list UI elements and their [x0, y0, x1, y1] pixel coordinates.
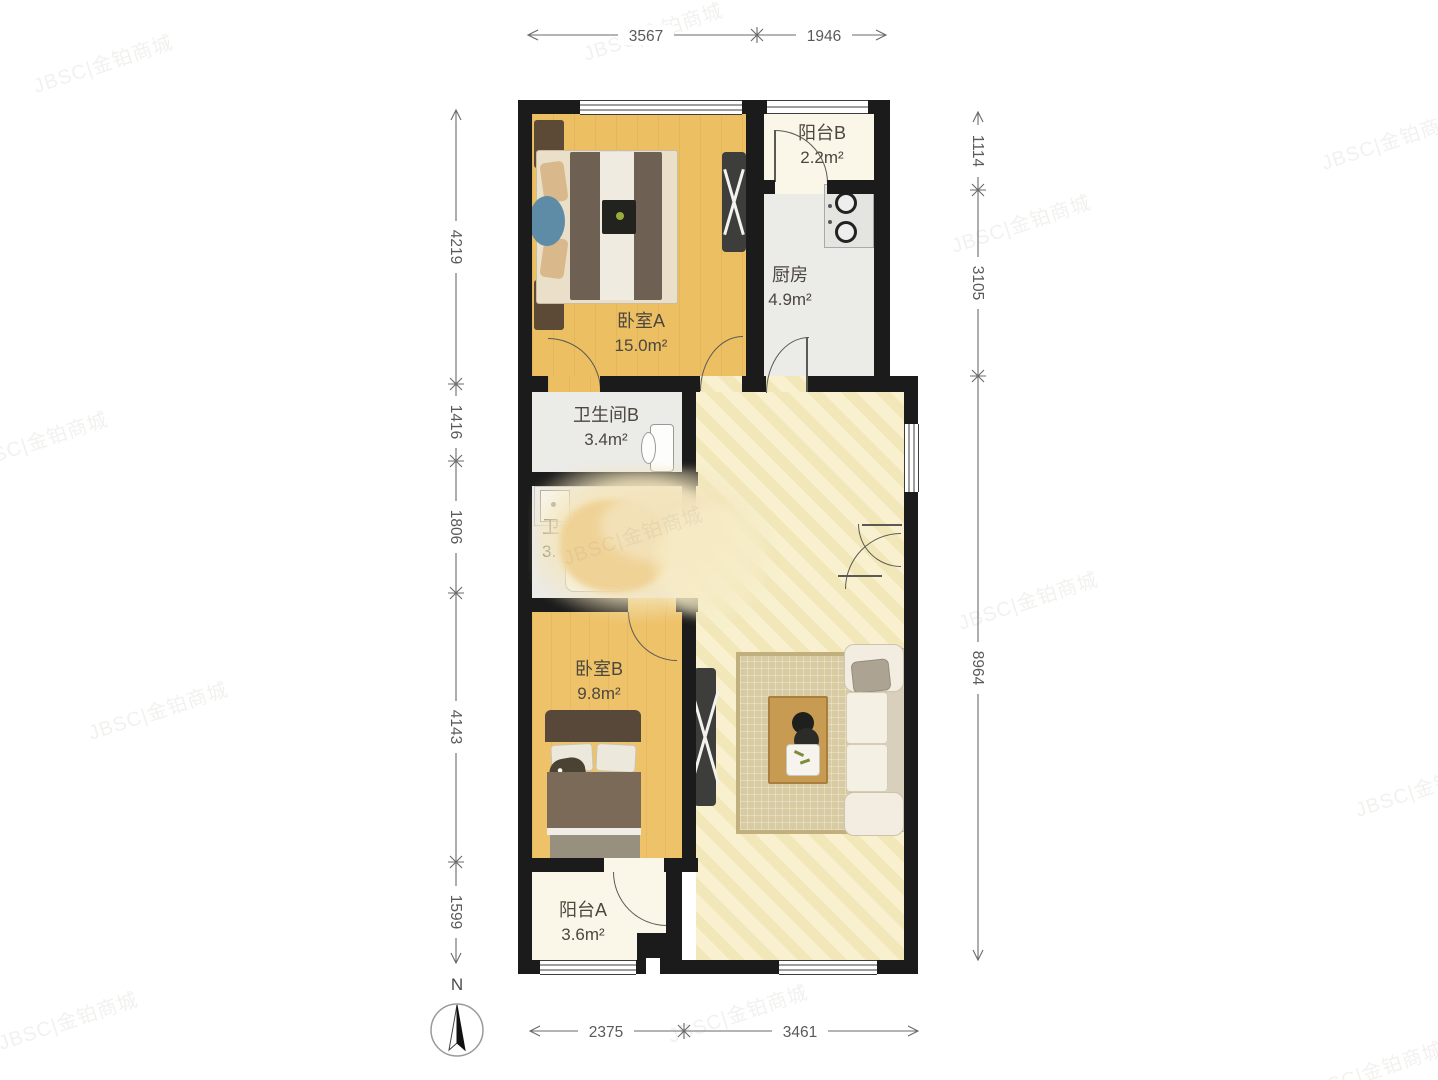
wall [518, 100, 532, 974]
room-name: 卧室A [615, 312, 668, 330]
room-name: 阳台A [559, 901, 607, 919]
north-label: N [451, 975, 463, 994]
toilet-bowl [641, 432, 656, 464]
window [904, 424, 919, 492]
room-label-balcony-b: 阳台B 2.2m² [798, 124, 846, 166]
room-area: 2.2m² [798, 149, 846, 166]
door-leaf [774, 130, 776, 182]
sofa-armrest [844, 792, 904, 836]
dim-value: 3567 [629, 28, 663, 45]
dim-value: 3105 [969, 266, 986, 300]
dimension-chain-right: 1114 3105 8964 [956, 95, 1000, 980]
room-name: 卫生间B [573, 406, 639, 424]
wall [518, 858, 604, 872]
flue-notch [646, 958, 660, 974]
dim-value: 3461 [783, 1024, 817, 1041]
compass: N [424, 972, 490, 1064]
dim-value: 1114 [969, 135, 986, 168]
pillow-icon [595, 743, 636, 773]
floor-plan: 卧室A 15.0m² 阳台B 2.2m² 厨房 4.9m² 卫生间B 3.4m²… [0, 0, 1438, 1080]
room-name: 阳台B [798, 124, 846, 142]
window [767, 100, 868, 114]
dim-value: 1946 [807, 28, 841, 45]
dimension-chain-left: 4219 1416 1806 4143 1599 [433, 95, 477, 980]
wall [742, 376, 766, 392]
wall [518, 376, 548, 392]
room-name: 厨房 [768, 266, 811, 284]
room-area: 4.9m² [768, 291, 811, 308]
watermark: JBSC|金铂商城 [0, 983, 141, 1055]
wall [664, 858, 698, 872]
room-area: 9.8m² [575, 685, 623, 702]
dimension-chain-top: 3567 1946 [500, 14, 910, 56]
dim-value: 4219 [447, 230, 464, 264]
wall [874, 100, 890, 392]
window [580, 100, 742, 115]
dim-value: 2375 [589, 1024, 623, 1041]
knob-dot [828, 220, 832, 224]
radiator-icon [694, 668, 716, 806]
dimension-chain-bottom: 2375 3461 [510, 1010, 930, 1052]
wall [682, 598, 696, 872]
sofa-cushion [846, 744, 888, 792]
dim-value: 4143 [447, 710, 464, 744]
sheet-line [547, 828, 641, 835]
blanket-icon [547, 772, 641, 834]
room-label-kitchen: 厨房 4.9m² [768, 266, 811, 308]
watermark: JBSC|金铂商城 [0, 403, 111, 475]
watermark: JBSC|金铂商城 [1351, 750, 1438, 822]
burner-icon [835, 221, 857, 243]
headboard-icon [545, 710, 641, 742]
watermark: JBSC|金铂商城 [29, 26, 176, 98]
smudge-artifact [655, 505, 767, 617]
dim-value: 1599 [447, 895, 464, 929]
watermark: JBSC|金铂商城 [1317, 103, 1438, 175]
door-leaf [838, 575, 882, 577]
throw-icon [529, 196, 565, 246]
wall [827, 180, 874, 194]
wall [764, 180, 775, 194]
door-threshold [604, 858, 664, 872]
watermark: JBSC|金铂商城 [1299, 1033, 1438, 1080]
radiator-icon [722, 152, 746, 252]
sofa-cushion [846, 692, 888, 744]
watermark: JBSC|金铂商城 [84, 673, 231, 745]
plant-dot [616, 212, 624, 220]
pillow-icon [850, 658, 891, 694]
wall [808, 376, 874, 392]
room-area: 3.4m² [573, 431, 639, 448]
dim-value: 1806 [447, 510, 464, 544]
window [779, 960, 877, 975]
bed-footer [550, 835, 640, 858]
room-area: 3.6m² [559, 926, 607, 943]
room-label-bedroom-b: 卧室B 9.8m² [575, 660, 623, 702]
knob-dot [828, 204, 832, 208]
room-label-bathroom-b: 卫生间B 3.4m² [573, 406, 639, 448]
room-label-balcony-a: 阳台A 3.6m² [559, 901, 607, 943]
door-leaf [862, 524, 902, 526]
wall [746, 114, 764, 392]
room-name: 卧室B [575, 660, 623, 678]
dim-value: 8964 [969, 651, 986, 686]
room-label-bedroom-a: 卧室A 15.0m² [615, 312, 668, 354]
room-area: 15.0m² [615, 337, 668, 354]
window [540, 960, 636, 975]
wall [666, 872, 682, 974]
burner-icon [835, 192, 857, 214]
dim-value: 1416 [447, 405, 464, 439]
